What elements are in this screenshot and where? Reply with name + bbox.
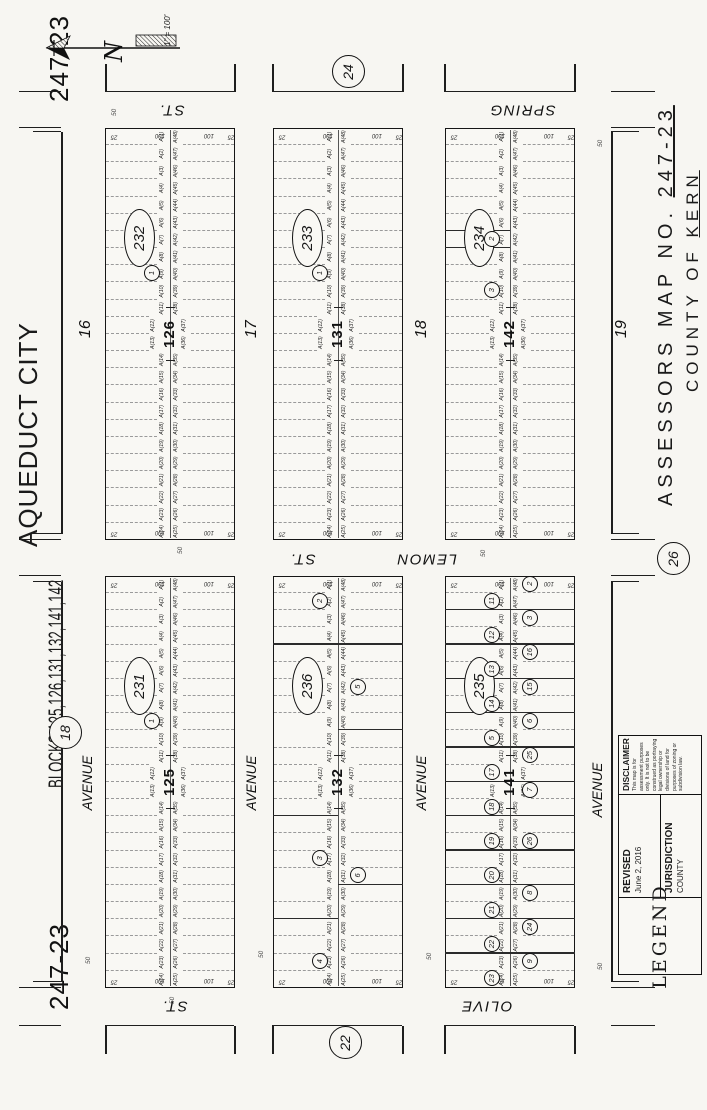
block-id-ellipse: 236 [292,657,323,715]
lot-line [351,436,402,437]
lot-line [531,764,574,765]
street-width-label: 50 [481,550,488,557]
edge-dimension: 100 [495,132,505,138]
edge-dimension: 100 [323,132,333,138]
street-frame-line [444,91,574,92]
street-width-label: 50 [259,951,266,958]
street-frame-line [234,1026,235,1054]
lot-line [351,264,402,265]
street-suffix: ST. [243,552,363,567]
lot-line [183,695,234,696]
street-frame-line [444,1026,445,1054]
street-frame-line [33,981,61,982]
edge-dimension: 100 [204,977,214,983]
street-width-label: 50 [178,547,185,554]
lot-line [446,470,497,471]
edge-dimension: 25 [279,979,286,985]
street-frame-line [444,64,445,92]
lot-line [523,196,574,197]
lot-line [274,144,325,145]
lot-line [274,402,325,403]
avenue-number: 19 [614,320,630,338]
lot-label: A(25) [514,518,520,544]
lot-line [106,884,157,885]
street-frame-line [611,981,639,982]
edge-dimension: 100 [544,977,554,983]
lot-line [351,419,402,420]
lot-line [351,488,402,489]
lot-line [183,901,234,902]
street-frame-line [574,64,575,92]
lot-line [446,333,489,334]
lot-line [523,901,574,902]
edge-dimension: 25 [451,582,458,588]
lot-line [274,970,325,971]
edge-dimension: 25 [396,531,403,537]
parcel-boundary-line [445,884,575,885]
map-subtitle-blocks: BLOCKS 125,126,131,132,141,142 [46,580,67,788]
lot-line [183,678,234,679]
avenue-number: 18 [414,320,430,338]
lot-label: A(36) [522,330,528,356]
lot-line [359,333,402,334]
street-frame-line [611,582,612,982]
block-number: 131 [330,314,345,354]
edge-dimension: 100 [323,529,333,535]
lot-line [183,453,234,454]
block-id-ellipse: 232 [124,209,155,267]
lot-line [359,764,402,765]
edge-dimension: 100 [544,580,554,586]
edge-dimension: 25 [568,582,575,588]
lot-line [106,488,157,489]
lot-line [106,333,149,334]
lot-line [351,850,402,851]
lot-line [191,798,234,799]
street-frame-line [105,1026,106,1054]
lot-line [351,747,402,748]
parcel-boundary-line [445,918,575,919]
lot-line [523,367,574,368]
lot-line [183,179,234,180]
disclaimer-text: This map is for assessment purposes only… [632,737,685,791]
street-frame-line [61,132,62,534]
lot-line [106,850,157,851]
lot-line [359,350,402,351]
lot-line [351,661,402,662]
lot-line [191,781,234,782]
parcel-number-circle: 11 [484,593,500,609]
lot-label: A(25) [174,966,180,992]
lot-line [274,196,325,197]
lot-label: A(36) [350,778,356,804]
avenue-number: 16 [78,320,94,338]
street-name: SPRING [463,103,583,118]
lot-line [274,179,325,180]
lot-line [446,350,489,351]
adjacent-sheet-circle: 24 [332,56,365,89]
lot-line [183,196,234,197]
assessors-number: 247-23 [655,105,677,197]
parcel-number-circle: 21 [484,902,500,918]
lot-line [446,144,497,145]
edge-dimension: 25 [228,582,235,588]
lot-line [191,764,234,765]
lot-line [183,747,234,748]
lot-label: A(36) [182,778,188,804]
lot-line [523,453,574,454]
edge-dimension: 25 [568,531,575,537]
lot-label: A(13) [151,778,157,804]
block-number-tick [506,755,515,756]
block-number-tick [334,755,343,756]
lot-line [106,627,157,628]
lot-line [106,196,157,197]
edge-dimension: 25 [451,979,458,985]
map-canvas: 247-23 247-23 AQUEDUCT CITY BLOCKS 125,1… [0,0,707,1110]
edge-dimension: 100 [204,529,214,535]
parcel-number-circle: 3 [522,610,538,626]
lot-label: A(36) [350,330,356,356]
lot-line [351,179,402,180]
lot-line [183,419,234,420]
lot-line [351,505,402,506]
edge-dimension: 100 [204,580,214,586]
street-frame-line [611,575,655,576]
lot-line [183,730,234,731]
parcel-number-circle: 5 [350,679,366,695]
lot-line [183,970,234,971]
street-name: LEMON [367,552,487,567]
parcel-number-circle: 2 [522,576,538,592]
lot-line [183,712,234,713]
street-frame-line [272,91,402,92]
lot-line [351,196,402,197]
lot-line [523,179,574,180]
street-frame-line [402,64,403,92]
lot-line [183,884,234,885]
lot-line [351,592,402,593]
lot-line [523,299,574,300]
lot-line [446,453,497,454]
lot-line [274,712,325,713]
lot-line [523,936,574,937]
assessors-map-no: ASSESSORS MAP NO. 247-23 [656,105,676,506]
lot-line [523,695,574,696]
parcel-number-circle: 2 [312,593,328,609]
lot-line [183,592,234,593]
parcel-boundary-line [338,884,403,885]
parcel-boundary-line [445,815,575,816]
edge-dimension: 100 [372,132,382,138]
lot-line [351,230,402,231]
lot-label: A(13) [151,330,157,356]
edge-dimension: 25 [451,134,458,140]
lot-line [351,213,402,214]
street-frame-line [234,64,235,92]
block-number: 141 [502,762,517,802]
lot-line [523,505,574,506]
lot-line [106,161,157,162]
lot-line [274,798,317,799]
street-frame-line [19,575,61,576]
lot-line [183,264,234,265]
lot-label: A(25) [342,966,348,992]
parcel-boundary-line [445,643,575,644]
lot-line [183,402,234,403]
parcel-number-circle: 12 [484,627,500,643]
block-number: 142 [502,314,517,354]
edge-dimension: 25 [111,582,118,588]
street-frame-line [19,987,61,988]
street-frame-line [19,539,61,540]
lot-line [351,936,402,937]
edge-dimension: 25 [228,531,235,537]
lot-line [183,282,234,283]
edge-dimension: 100 [372,580,382,586]
lot-line [106,970,157,971]
lot-line [351,833,402,834]
lot-line [106,367,157,368]
lot-line [106,316,149,317]
lot-line [523,161,574,162]
parcel-number-circle: 22 [484,936,500,952]
lot-line [351,282,402,283]
edge-dimension: 100 [495,529,505,535]
legend-revised-cell: REVISED June 2, 2016 [619,795,661,897]
lot-label: A(25) [174,518,180,544]
lot-line [274,505,325,506]
lot-line [351,970,402,971]
lot-label: A(25) [514,966,520,992]
lot-line [274,488,325,489]
lot-line [351,695,402,696]
lot-line [183,385,234,386]
street-frame-line [19,91,61,92]
edge-dimension: 25 [111,979,118,985]
parcel-number-circle: 6 [522,713,538,729]
lot-line [446,402,497,403]
parcel-number-circle: 1 [144,713,160,729]
lot-line [446,385,497,386]
parcel-boundary-line [445,712,575,713]
lot-line [183,936,234,937]
avenue-label: AVENUE [245,738,259,828]
street-suffix: ST. [112,103,232,118]
avenue-label: AVENUE [591,745,605,835]
lot-line [106,764,149,765]
lot-line [106,833,157,834]
parcel-boundary-line [445,952,575,953]
lot-label: A(13) [491,330,497,356]
legend-jurisdiction-cell: JURISDICTION COUNTY [661,795,703,897]
lot-line [106,470,157,471]
lot-line [446,798,489,799]
block-number-tick [166,755,175,756]
county-of-kern: COUNTY OF KERN [684,170,701,392]
adjacent-sheet-circle: 26 [657,543,690,576]
revised-label: REVISED [622,799,634,893]
block-number-tick [506,360,515,361]
edge-dimension: 25 [279,582,286,588]
avenue-label: AVENUE [415,738,429,828]
lot-line [183,867,234,868]
street-frame-line [19,1025,61,1026]
parcel-number-circle: 3 [484,282,500,298]
parcel-boundary-line [445,746,575,747]
lot-line [446,436,497,437]
lot-line [106,592,157,593]
lot-line [531,350,574,351]
lot-line [183,367,234,368]
street-width-label: 50 [427,953,434,960]
parcel-number-circle: 26 [522,833,538,849]
jurisdiction-label: JURISDICTION [664,799,676,893]
edge-dimension: 100 [544,529,554,535]
lot-line [106,505,157,506]
lot-line [274,350,317,351]
lot-line [274,385,325,386]
lot-label: A(25) [342,518,348,544]
lot-line [106,936,157,937]
adjacent-sheet-circle: 22 [329,1027,362,1060]
street-frame-line [19,127,61,128]
lot-line [351,402,402,403]
lot-line [183,609,234,610]
edge-dimension: 25 [396,134,403,140]
legend-title: LEGEND [619,897,701,974]
lot-line [523,661,574,662]
lot-line [274,747,325,748]
lot-line [106,918,157,919]
lot-label: A(13) [319,330,325,356]
lot-line [523,470,574,471]
lot-line [183,505,234,506]
lot-line [351,247,402,248]
lot-line [351,901,402,902]
edge-dimension: 25 [568,134,575,140]
lot-line [274,609,325,610]
street-frame-line [61,582,62,982]
lot-line [183,247,234,248]
legend-box: LEGEND REVISED June 2, 2016 JURISDICTION… [618,735,702,975]
street-frame-line [574,1026,575,1054]
lot-line [106,453,157,454]
edge-dimension: 100 [323,580,333,586]
lot-line [523,282,574,283]
lot-line [106,299,157,300]
parcel-number-circle: 15 [522,679,538,695]
lot-line [351,367,402,368]
lot-label: A(36) [182,330,188,356]
block-number-tick [166,808,175,809]
lot-line [106,747,157,748]
edge-dimension: 100 [155,977,165,983]
street-frame-line [611,127,655,128]
lot-line [274,470,325,471]
revised-date: June 2, 2016 [634,799,644,893]
lot-line [106,901,157,902]
jurisdiction-value: COUNTY [676,799,686,893]
street-frame-line [105,1025,234,1026]
lot-line [106,402,157,403]
lot-line [523,264,574,265]
lot-line [359,798,402,799]
lot-line [446,367,497,368]
lot-line [106,730,157,731]
lot-line [183,470,234,471]
north-label: N [100,40,128,63]
lot-line [183,488,234,489]
parcel-number-circle: 2 [484,231,500,247]
lot-line [351,385,402,386]
lot-line [351,470,402,471]
edge-dimension: 100 [204,132,214,138]
lot-line [106,867,157,868]
lot-line [274,867,325,868]
assessor-map-sheet: 247-23 247-23 AQUEDUCT CITY BLOCKS 125,1… [0,0,707,1110]
edge-dimension: 25 [279,134,286,140]
block-number: 132 [330,762,345,802]
lot-line [274,333,317,334]
lot-line [351,712,402,713]
street-frame-line [33,131,61,132]
lot-line [351,627,402,628]
lot-line [274,367,325,368]
street-frame-line [105,91,234,92]
street-frame-line [33,581,61,582]
street-width-label: 50 [170,997,177,1004]
lot-line [106,385,157,386]
lot-line [351,609,402,610]
edge-dimension: 100 [495,580,505,586]
lot-line [106,609,157,610]
lot-line [531,333,574,334]
map-title: AQUEDUCT CITY [15,322,41,547]
lot-line [183,299,234,300]
lot-line [106,798,149,799]
adjacent-sheet-circle: 18 [49,717,82,750]
edge-dimension: 25 [396,582,403,588]
block-number-tick [506,307,515,308]
lot-line [183,161,234,162]
lot-line [274,522,325,523]
edge-dimension: 100 [372,977,382,983]
parcel-number-circle: 5 [484,730,500,746]
block-number-tick [334,360,343,361]
edge-dimension: 100 [323,977,333,983]
lot-line [106,644,157,645]
street-frame-line [611,131,639,132]
edge-dimension: 25 [228,134,235,140]
lot-line [183,230,234,231]
lot-line [191,350,234,351]
lot-line [523,522,574,523]
lot-line [183,918,234,919]
parcel-number-circle: 1 [312,265,328,281]
lot-line [274,282,325,283]
lot-line [446,764,489,765]
lot-line [106,781,149,782]
block-id-ellipse: 231 [124,657,155,715]
lot-label: A(13) [319,778,325,804]
block-id-ellipse: 233 [292,209,323,267]
edge-dimension: 25 [279,531,286,537]
block-number-tick [334,808,343,809]
lot-line [446,522,497,523]
parcel-number-circle: 7 [522,782,538,798]
street-name: OLIVE [427,999,547,1014]
